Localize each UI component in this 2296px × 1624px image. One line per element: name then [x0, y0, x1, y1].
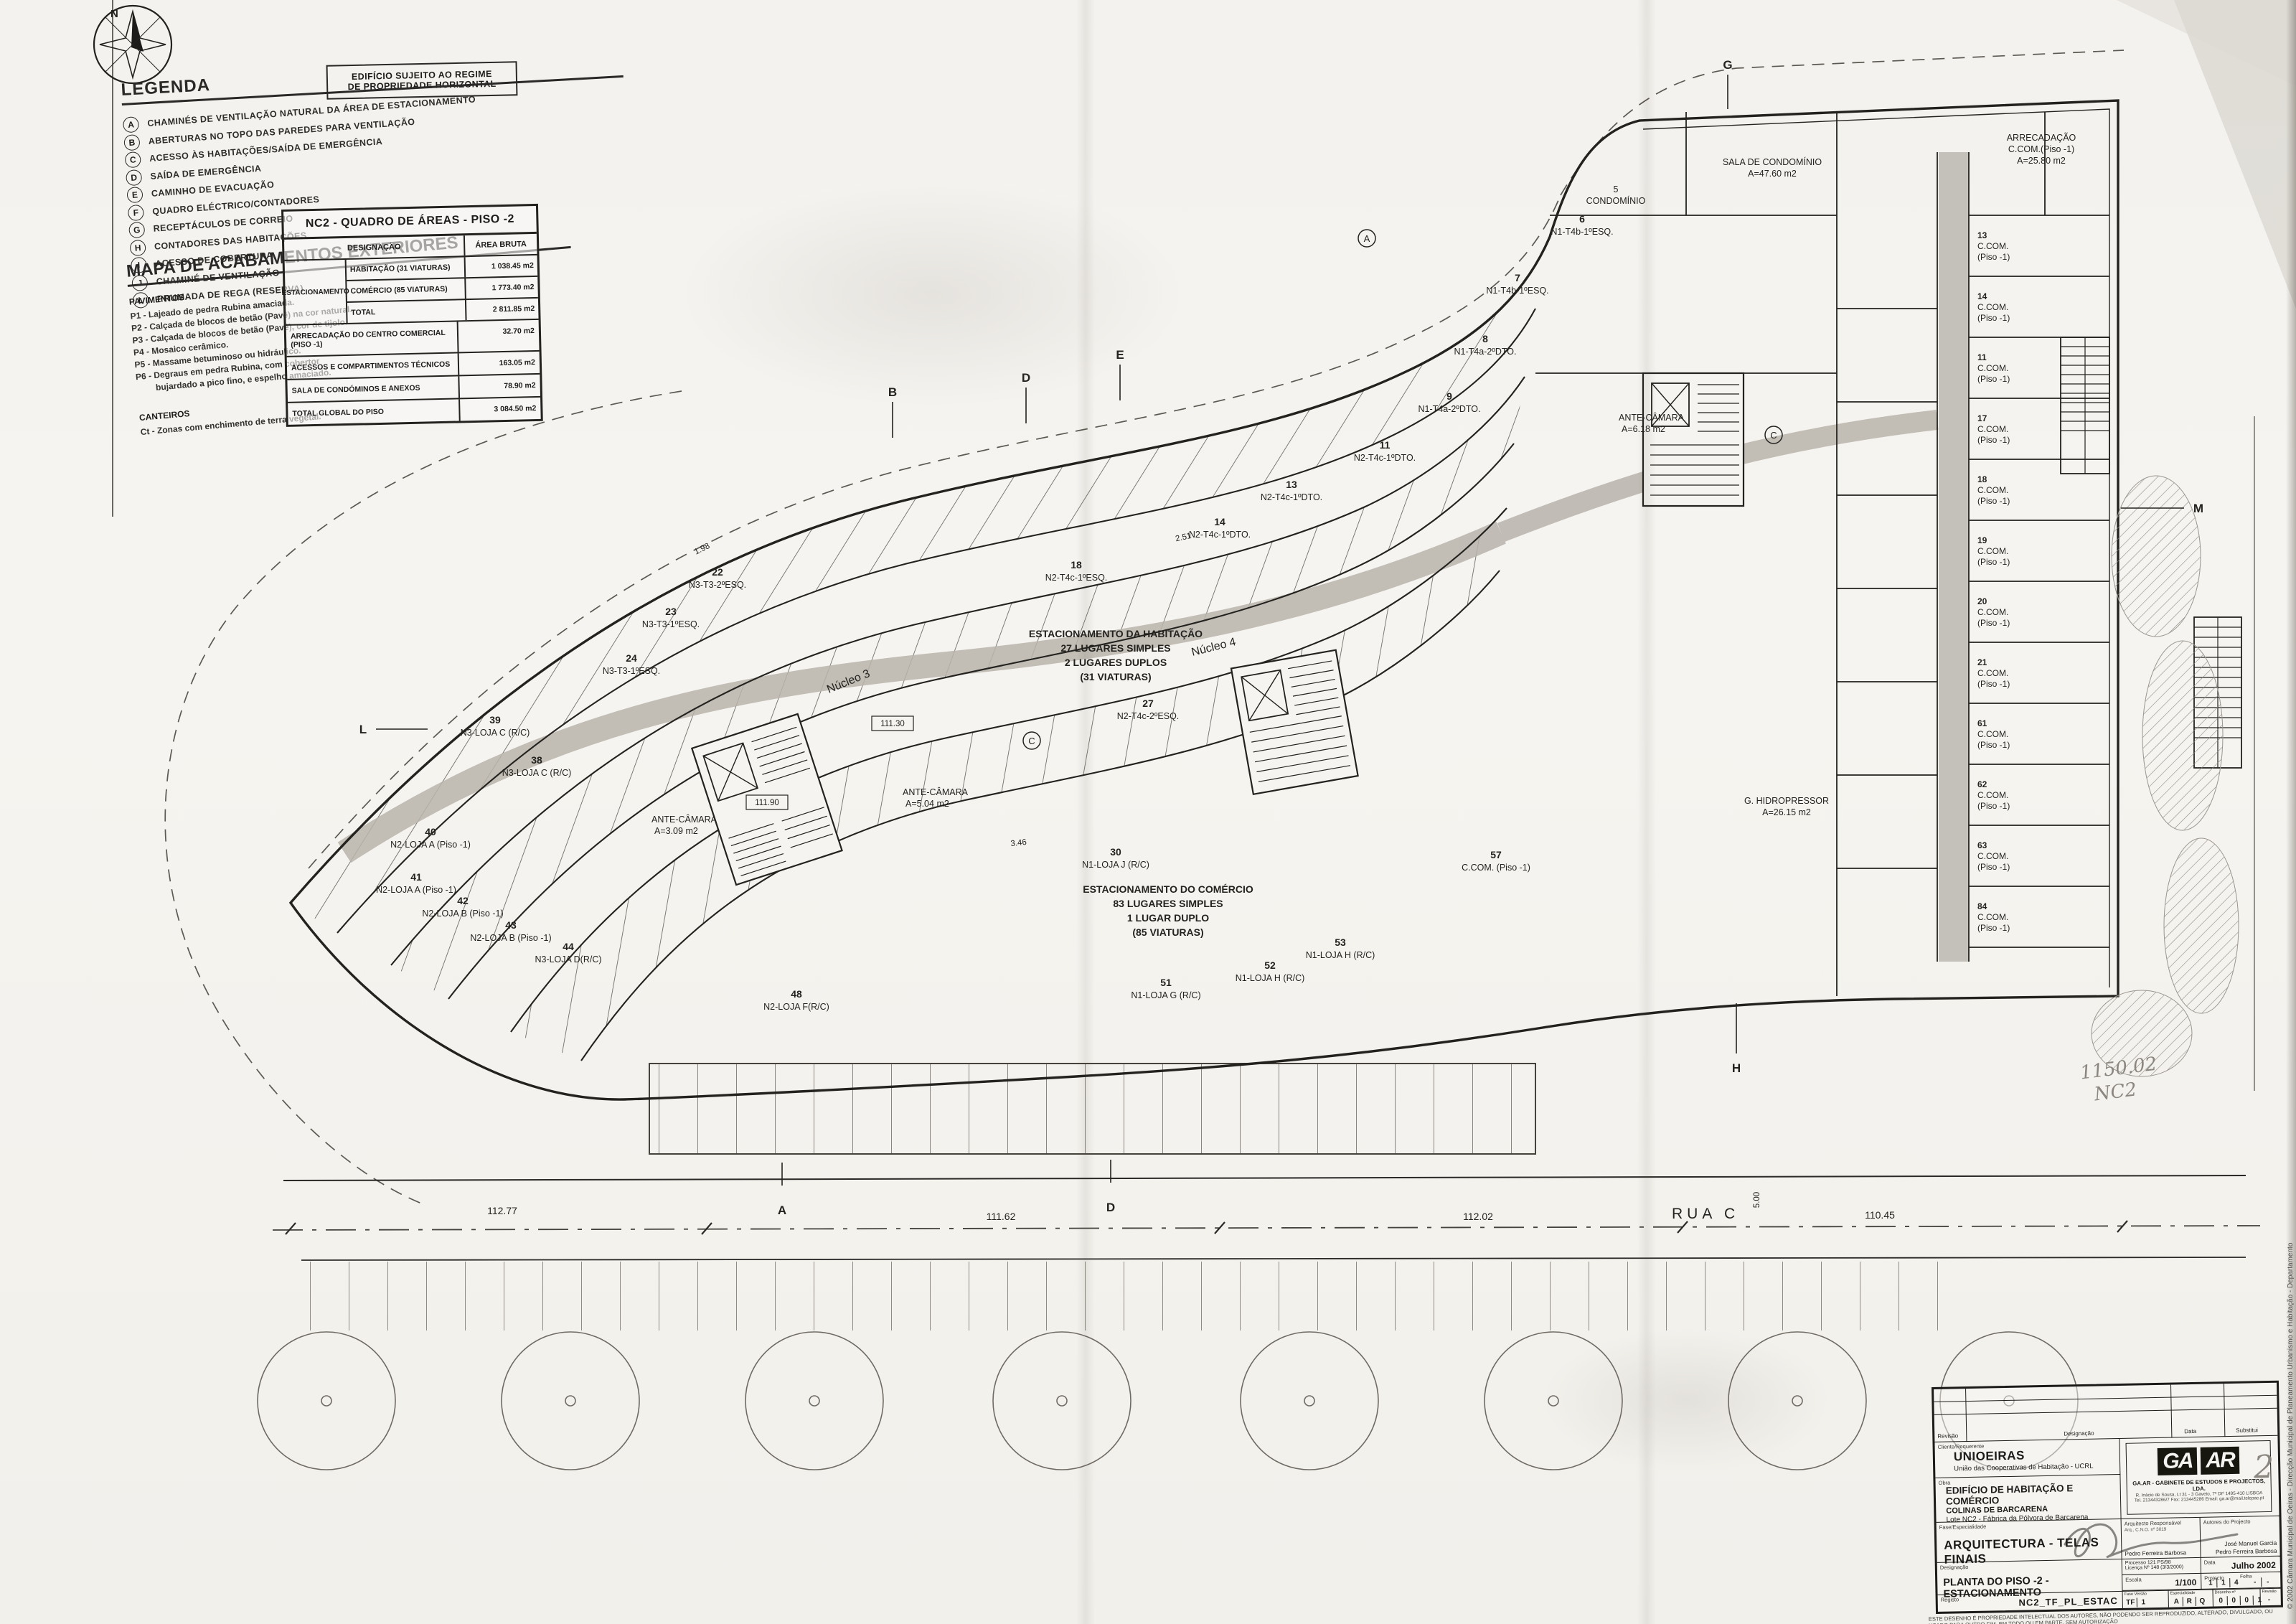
- table-cell: SALA DE CONDÓMINOS E ANEXOS: [287, 376, 460, 401]
- table-cell: 32.70 m2: [458, 320, 540, 352]
- architect-cell: Arquitecto Responsável Arq., C.N.O. nº 3…: [2122, 1518, 2201, 1559]
- box-value: 0: [2240, 1595, 2253, 1605]
- scan-smudge: [682, 179, 1184, 409]
- gaar-logo: GA AR: [2127, 1446, 2271, 1476]
- cell-number: 21: [1977, 657, 1987, 667]
- stall-number: 38: [531, 754, 542, 766]
- revision-col-label: Revisão: [1937, 1432, 1958, 1440]
- legend-key: B: [123, 133, 141, 151]
- stall-number: 22: [712, 566, 723, 578]
- stall-number: 14: [1214, 516, 1225, 527]
- stall-number: 40: [425, 826, 436, 837]
- cell-label: C.COM.: [1977, 912, 2008, 922]
- cell-number: 17: [1977, 413, 1987, 423]
- cell-label: Especialidade: [2170, 1591, 2196, 1596]
- dimension: 112.77: [487, 1205, 517, 1216]
- stair-core-nucleo4: [1231, 650, 1358, 794]
- cell-label: Fase/Especialidade: [1939, 1524, 1987, 1531]
- cell-label: C.COM.: [1977, 851, 2008, 861]
- grid-marker: H: [1732, 1061, 1741, 1075]
- author-name: Pedro Ferreira Barbosa: [2216, 1548, 2277, 1556]
- box-value: 0: [2215, 1596, 2227, 1605]
- especialidade-cell: Especialidade A R Q: [2168, 1590, 2213, 1607]
- cell-label: C.COM.: [1977, 302, 2008, 312]
- areas-table: NC2 - QUADRO DE ÁREAS - PISO -2 DESIGNAÇ…: [281, 204, 543, 427]
- room-label: ANTE-CÂMARA: [903, 787, 969, 797]
- stall-label: N1-T4b-1ºESQ.: [1486, 286, 1548, 296]
- stall-number: 11: [1380, 439, 1391, 451]
- client-cell: Cliente/Requerente UNIOEIRAS União das C…: [1934, 1439, 2120, 1478]
- scale-value: 1/100: [2175, 1577, 2196, 1588]
- cell-label: C.COM.: [1977, 424, 2008, 434]
- fase-boxes: TF 1: [2125, 1597, 2150, 1607]
- box-value: A: [2170, 1597, 2183, 1606]
- cell-label: Cliente/Requerente: [1938, 1443, 1985, 1450]
- cell-number: 18: [1977, 474, 1987, 484]
- cell-label: Designação: [1940, 1564, 1969, 1571]
- cell-floor: (Piso -1): [1977, 557, 2010, 567]
- box-value: TF: [2125, 1598, 2137, 1607]
- cell-floor: (Piso -1): [1977, 374, 2010, 384]
- table-cell: 3 084.50 m2: [460, 398, 541, 421]
- author-name: José Manuel Garcia: [2224, 1540, 2277, 1547]
- espec-boxes: A R Q: [2170, 1597, 2208, 1607]
- logo-glyph: AR: [2201, 1447, 2239, 1475]
- pencil-note: 1150.02: [2079, 1053, 2158, 1084]
- street-label: RUA C: [1672, 1206, 1739, 1222]
- cell-label: Arquitecto Responsável: [2125, 1519, 2181, 1527]
- municipal-copy-stamp: © 2002 Câmara Municipal de Oeiras - Dire…: [2286, 1207, 2296, 1609]
- cell-number: 11: [1977, 352, 1987, 362]
- grid-marker: A: [778, 1203, 786, 1217]
- stall-label: N2-LOJA F(R/C): [763, 1002, 829, 1012]
- table-cell: 2 811.85 m2: [466, 297, 539, 320]
- stall-label: N1-T4a-2ºDTO.: [1418, 404, 1481, 414]
- revision-col-label: Data: [2184, 1428, 2196, 1435]
- stall-label: N1-LOJA H (R/C): [1306, 950, 1375, 960]
- stair-core-right: [1643, 373, 1744, 506]
- stall-number: 51: [1160, 977, 1172, 988]
- cell-number: 61: [1977, 718, 1987, 728]
- licenca: Licença Nº 148 (3/3/2000): [2125, 1564, 2201, 1571]
- stall-label: N2-LOJA A (Piso -1): [376, 885, 456, 895]
- dimension: 3.46: [1010, 838, 1027, 848]
- box-value: 0: [2227, 1596, 2240, 1605]
- table-cell: ACESSOS E COMPARTIMENTOS TÉCNICOS: [287, 353, 460, 378]
- stall-label: N2-LOJA B (Piso -1): [422, 909, 503, 919]
- stall-number: 30: [1110, 846, 1121, 858]
- cell-floor: (Piso -1): [1977, 801, 2010, 811]
- date-value: Julho 2002: [2231, 1560, 2276, 1571]
- cell-label: C.COM.: [1977, 729, 2008, 739]
- room-number: 5: [1614, 184, 1619, 194]
- circled-letter: A: [1364, 233, 1370, 244]
- cell-label: C.COM.: [1977, 241, 2008, 251]
- stair-right-wing: [2061, 337, 2109, 474]
- column-header: DESIGNAÇÃO: [284, 235, 466, 260]
- grid-marker: D: [1106, 1201, 1115, 1214]
- table-cell: HABITAÇÃO (31 VIATURAS): [347, 257, 466, 280]
- cell-floor: (Piso -1): [1977, 679, 2010, 689]
- box-value: R: [2183, 1597, 2196, 1606]
- stall-number: 39: [489, 714, 501, 726]
- table-cell: 163.05 m2: [459, 352, 540, 375]
- table-cell: 78.90 m2: [459, 375, 540, 398]
- stall-number: 43: [505, 919, 517, 931]
- cell-floor: (Piso -1): [1977, 740, 2010, 750]
- cell-label: C.COM.: [1977, 790, 2008, 800]
- cell-number: 20: [1977, 596, 1987, 606]
- stall-label: N1-T4b-1ºESQ.: [1551, 227, 1613, 237]
- stall-number: 23: [665, 606, 677, 617]
- stall-number: 8: [1482, 333, 1488, 344]
- stall-number: 42: [457, 895, 469, 906]
- legend-key: A: [123, 116, 140, 133]
- stall-label: N3-LOJA D(R/C): [535, 954, 601, 964]
- stall-number: 9: [1446, 390, 1452, 402]
- cell-number: 84: [1977, 901, 1987, 911]
- cell-label: Obra: [1938, 1480, 1950, 1486]
- cell-label: C.COM.: [1977, 363, 2008, 373]
- box-value: 1: [2204, 1578, 2216, 1587]
- note-parking-comercio: ESTACIONAMENTO DO COMÉRCIO 83 LUGARES SI…: [1083, 883, 1253, 938]
- box-value: -: [2261, 1577, 2274, 1587]
- stall-label: N2-T4c-2ºESQ.: [1117, 711, 1180, 721]
- pencil-annotation: 1150.02 NC2: [2079, 1053, 2160, 1107]
- circled-letter: C: [1028, 736, 1035, 746]
- scan-smudge: [1543, 1328, 1830, 1471]
- dimension: 110.45: [1865, 1209, 1895, 1221]
- cell-label: C.COM.: [1977, 546, 2008, 556]
- office-cell: GA AR GA.AR - GABINETE DE ESTUDOS E PROJ…: [2119, 1436, 2279, 1519]
- revision-col-label: Substitui: [2236, 1427, 2258, 1434]
- room-label: SALA DE CONDOMÍNIO: [1723, 156, 1822, 167]
- stall-label: N3-T3-1ºESQ.: [603, 666, 660, 676]
- handwritten-sheet-number: 2: [2254, 1449, 2274, 1486]
- revisao-cell: Revisão -: [2260, 1588, 2280, 1606]
- grid-marker: M: [2193, 502, 2203, 515]
- desenho-cell: Desenho nº 0 0 0 1: [2213, 1588, 2260, 1606]
- stall-number: 24: [626, 652, 637, 664]
- table-cell: TOTAL GLOBAL DO PISO: [288, 399, 461, 424]
- office-box: GA AR GA.AR - GABINETE DE ESTUDOS E PROJ…: [2126, 1440, 2272, 1515]
- stall-label: N1-LOJA G (R/C): [1131, 990, 1200, 1000]
- dimension: 1.98: [693, 542, 711, 557]
- file-code: NC2_TF_PL_ESTAC: [2018, 1595, 2118, 1608]
- cell-label: Escala: [2125, 1576, 2142, 1582]
- stall-label: N1-LOJA H (R/C): [1236, 973, 1305, 983]
- corridor-right-wing: [1939, 152, 1969, 962]
- designacao-cell: Designação PLANTA DO PISO -2 - ESTACIONA…: [1937, 1559, 2123, 1595]
- legend-key: F: [128, 204, 145, 221]
- box-value: Q: [2196, 1597, 2208, 1606]
- fase-versao-cell: Fase Versão TF 1: [2123, 1590, 2169, 1608]
- grid-marker: L: [359, 723, 367, 736]
- cell-floor: (Piso -1): [1977, 496, 2010, 506]
- north-arrow: [94, 6, 171, 83]
- authors-cell: Autores do Projecto José Manuel Garcia P…: [2201, 1516, 2280, 1558]
- stall-label: N2-T4c-1ºDTO.: [1189, 530, 1251, 540]
- table-row: ARRECADAÇÃO DO CENTRO COMERCIAL (PISO -1…: [286, 319, 540, 356]
- table-cell: 1 038.45 m2: [466, 255, 538, 277]
- cell-label: C.COM.: [1977, 485, 2008, 495]
- dimension: 111.90: [755, 799, 778, 807]
- data-cell: Data Julho 2002: [2201, 1557, 2280, 1574]
- note-line: ESTACIONAMENTO DO COMÉRCIO: [1083, 883, 1253, 895]
- dimension: 111.30: [880, 720, 904, 728]
- stall-number: 44: [563, 941, 574, 952]
- cell-label: C.COM.: [1977, 668, 2008, 678]
- stall-label: N3-LOJA C (R/C): [502, 768, 572, 778]
- room-label: ANTE-CÂMARA: [651, 814, 717, 825]
- file-cell: Registo NC2_TF_PL_ESTAC: [1938, 1591, 2123, 1612]
- dimension: 112.02: [1463, 1211, 1493, 1222]
- cell-label: Autores do Projecto: [2203, 1519, 2251, 1526]
- right-wing-partitions: [1535, 112, 2109, 996]
- room-area: A=3.09 m2: [654, 826, 698, 836]
- note-line: 83 LUGARES SIMPLES: [1113, 898, 1223, 909]
- north-letter: N: [110, 8, 118, 20]
- group-label: ESTACIONAMENTO: [285, 260, 348, 324]
- projecto-cell: Projecto Folha 1 1 4 - -: [2201, 1572, 2280, 1590]
- stall-label: N3-T3-2ºESQ.: [689, 580, 746, 590]
- stall-number: 52: [1264, 959, 1276, 971]
- projecto-boxes: 1 1 4: [2204, 1578, 2242, 1588]
- note-line: (85 VIATURAS): [1132, 926, 1203, 938]
- cell-label: Revisão: [2262, 1590, 2277, 1594]
- stall-label: C.COM. (Piso -1): [1462, 863, 1530, 873]
- legend-key: D: [126, 169, 143, 186]
- escala-cell: Escala 1/100: [2122, 1574, 2201, 1591]
- title-block: Revisão Designação Data Substitui Client…: [1932, 1381, 2283, 1614]
- road-rua-c: [273, 1175, 2260, 1260]
- stamp-line: © 2002 Câmara Municipal de Oeiras - Dire…: [2286, 1207, 2296, 1609]
- cell-floor: (Piso -1): [1977, 923, 2010, 933]
- table-cell: TOTAL: [347, 299, 467, 323]
- vegetation-hatch: [2092, 476, 2239, 1076]
- box-value: 1: [2216, 1578, 2229, 1587]
- stall-label: N2-LOJA B (Piso -1): [470, 933, 551, 943]
- note-line: ESTACIONAMENTO DA HABITAÇÃO: [1029, 627, 1203, 639]
- room-area: A=26.15 m2: [1762, 807, 1811, 817]
- cell-floor: (Piso -1): [1977, 435, 2010, 445]
- room-area: A=47.60 m2: [1748, 169, 1797, 179]
- cell-number: 62: [1977, 779, 1987, 789]
- cell-floor: (Piso -1): [1977, 313, 2010, 323]
- stall-number: 6: [1579, 213, 1585, 225]
- architect-name: Pedro Ferreira Barbosa: [2125, 1549, 2186, 1557]
- stall-number: 53: [1335, 937, 1346, 948]
- room-area: A=5.04 m2: [905, 799, 949, 809]
- dimension: 5.00: [1753, 1192, 1761, 1208]
- cell-floor: (Piso -1): [1977, 252, 2010, 262]
- circled-letter: C: [1770, 430, 1777, 441]
- pencil-note: NC2: [2092, 1079, 2137, 1105]
- obra-line: EDIFÍCIO DE HABITAÇÃO E COMÉRCIO: [1946, 1482, 2121, 1507]
- stall-number: 13: [1286, 479, 1297, 490]
- cell-number: 14: [1977, 291, 1987, 301]
- logo-glyph: GA: [2158, 1447, 2198, 1475]
- legend-key: E: [126, 187, 143, 204]
- cell-floor: (Piso -1): [1977, 862, 2010, 872]
- architect-credential: Arq., C.N.O. nº 3019: [2125, 1527, 2167, 1533]
- cell-label: C.COM.: [1977, 607, 2008, 617]
- street-parking-ticks: [301, 1262, 1966, 1330]
- stall-number: 7: [1515, 272, 1520, 283]
- box-value: 1: [2137, 1597, 2150, 1607]
- obra-cell: Obra EDIFÍCIO DE HABITAÇÃO E COMÉRCIO CO…: [1935, 1475, 2121, 1523]
- legend-key: G: [128, 222, 146, 239]
- cell-label: Fase Versão: [2125, 1592, 2147, 1597]
- cell-number: 13: [1977, 230, 1987, 240]
- table-cell: ARRECADAÇÃO DO CENTRO COMERCIAL (PISO -1…: [286, 321, 459, 355]
- cell-number: 19: [1977, 535, 1987, 545]
- stall-label: N2-T4c-1ºDTO.: [1261, 492, 1322, 502]
- dimension: 111.62: [987, 1211, 1016, 1222]
- room-label: G. HIDROPRESSOR: [1744, 796, 1829, 806]
- scanned-plan-sheet: G B D E L M A D H: [0, 0, 2296, 1624]
- box-value: 4: [2229, 1578, 2242, 1587]
- cell-floor: (Piso -1): [1977, 618, 2010, 628]
- cell-label: Desenho nº: [2215, 1590, 2236, 1595]
- stall-number: 57: [1490, 849, 1502, 860]
- column-header: ÁREA BRUTA: [465, 234, 537, 255]
- stall-label: N3-LOJA C (R/C): [461, 728, 530, 738]
- stall-label: N3-T3-1ºESQ.: [642, 619, 700, 629]
- table-cell: 1 773.40 m2: [466, 276, 538, 299]
- areas-table-grouped-rows: ESTACIONAMENTO HABITAÇÃO (31 VIATURAS) 1…: [285, 255, 539, 324]
- processo-cell: Processo 121 PS/98 Licença Nº 148 (3/3/2…: [2122, 1558, 2201, 1575]
- note-line: 1 LUGAR DUPLO: [1127, 912, 1209, 924]
- stall-label: N2-LOJA A (Piso -1): [390, 840, 471, 850]
- stall-number: 48: [791, 988, 802, 1000]
- legend-key: C: [124, 151, 141, 169]
- table-cell: COMÉRCIO (85 VIATURAS): [347, 277, 466, 301]
- legend-key: H: [129, 239, 146, 256]
- box-value: -: [2249, 1577, 2261, 1587]
- stall-label: N2-T4c-1ºDTO.: [1354, 453, 1416, 463]
- cell-number: 63: [1977, 840, 1987, 850]
- box-value: -: [2268, 1596, 2271, 1604]
- stall-number: 27: [1142, 698, 1154, 709]
- room-area: A=25.80 m2: [2017, 156, 2066, 166]
- stall-label: N1-T4a-2ºDTO.: [1454, 347, 1517, 357]
- desenho-boxes: 0 0 0 1: [2215, 1595, 2266, 1605]
- fase-cell: Fase/Especialidade ARQUITECTURA - TELAS …: [1937, 1519, 2122, 1563]
- cell-label: Data: [2204, 1559, 2216, 1565]
- cell-label: Registo: [1941, 1596, 1959, 1602]
- stall-number: 41: [410, 871, 422, 883]
- revision-col-label: Designação: [2064, 1430, 2094, 1437]
- grid-marker: G: [1723, 58, 1732, 72]
- room-label: ARRECADAÇÃO: [2007, 133, 2076, 143]
- room-label: C.COM.(Piso -1): [2008, 144, 2074, 154]
- folha-boxes: - -: [2249, 1577, 2274, 1587]
